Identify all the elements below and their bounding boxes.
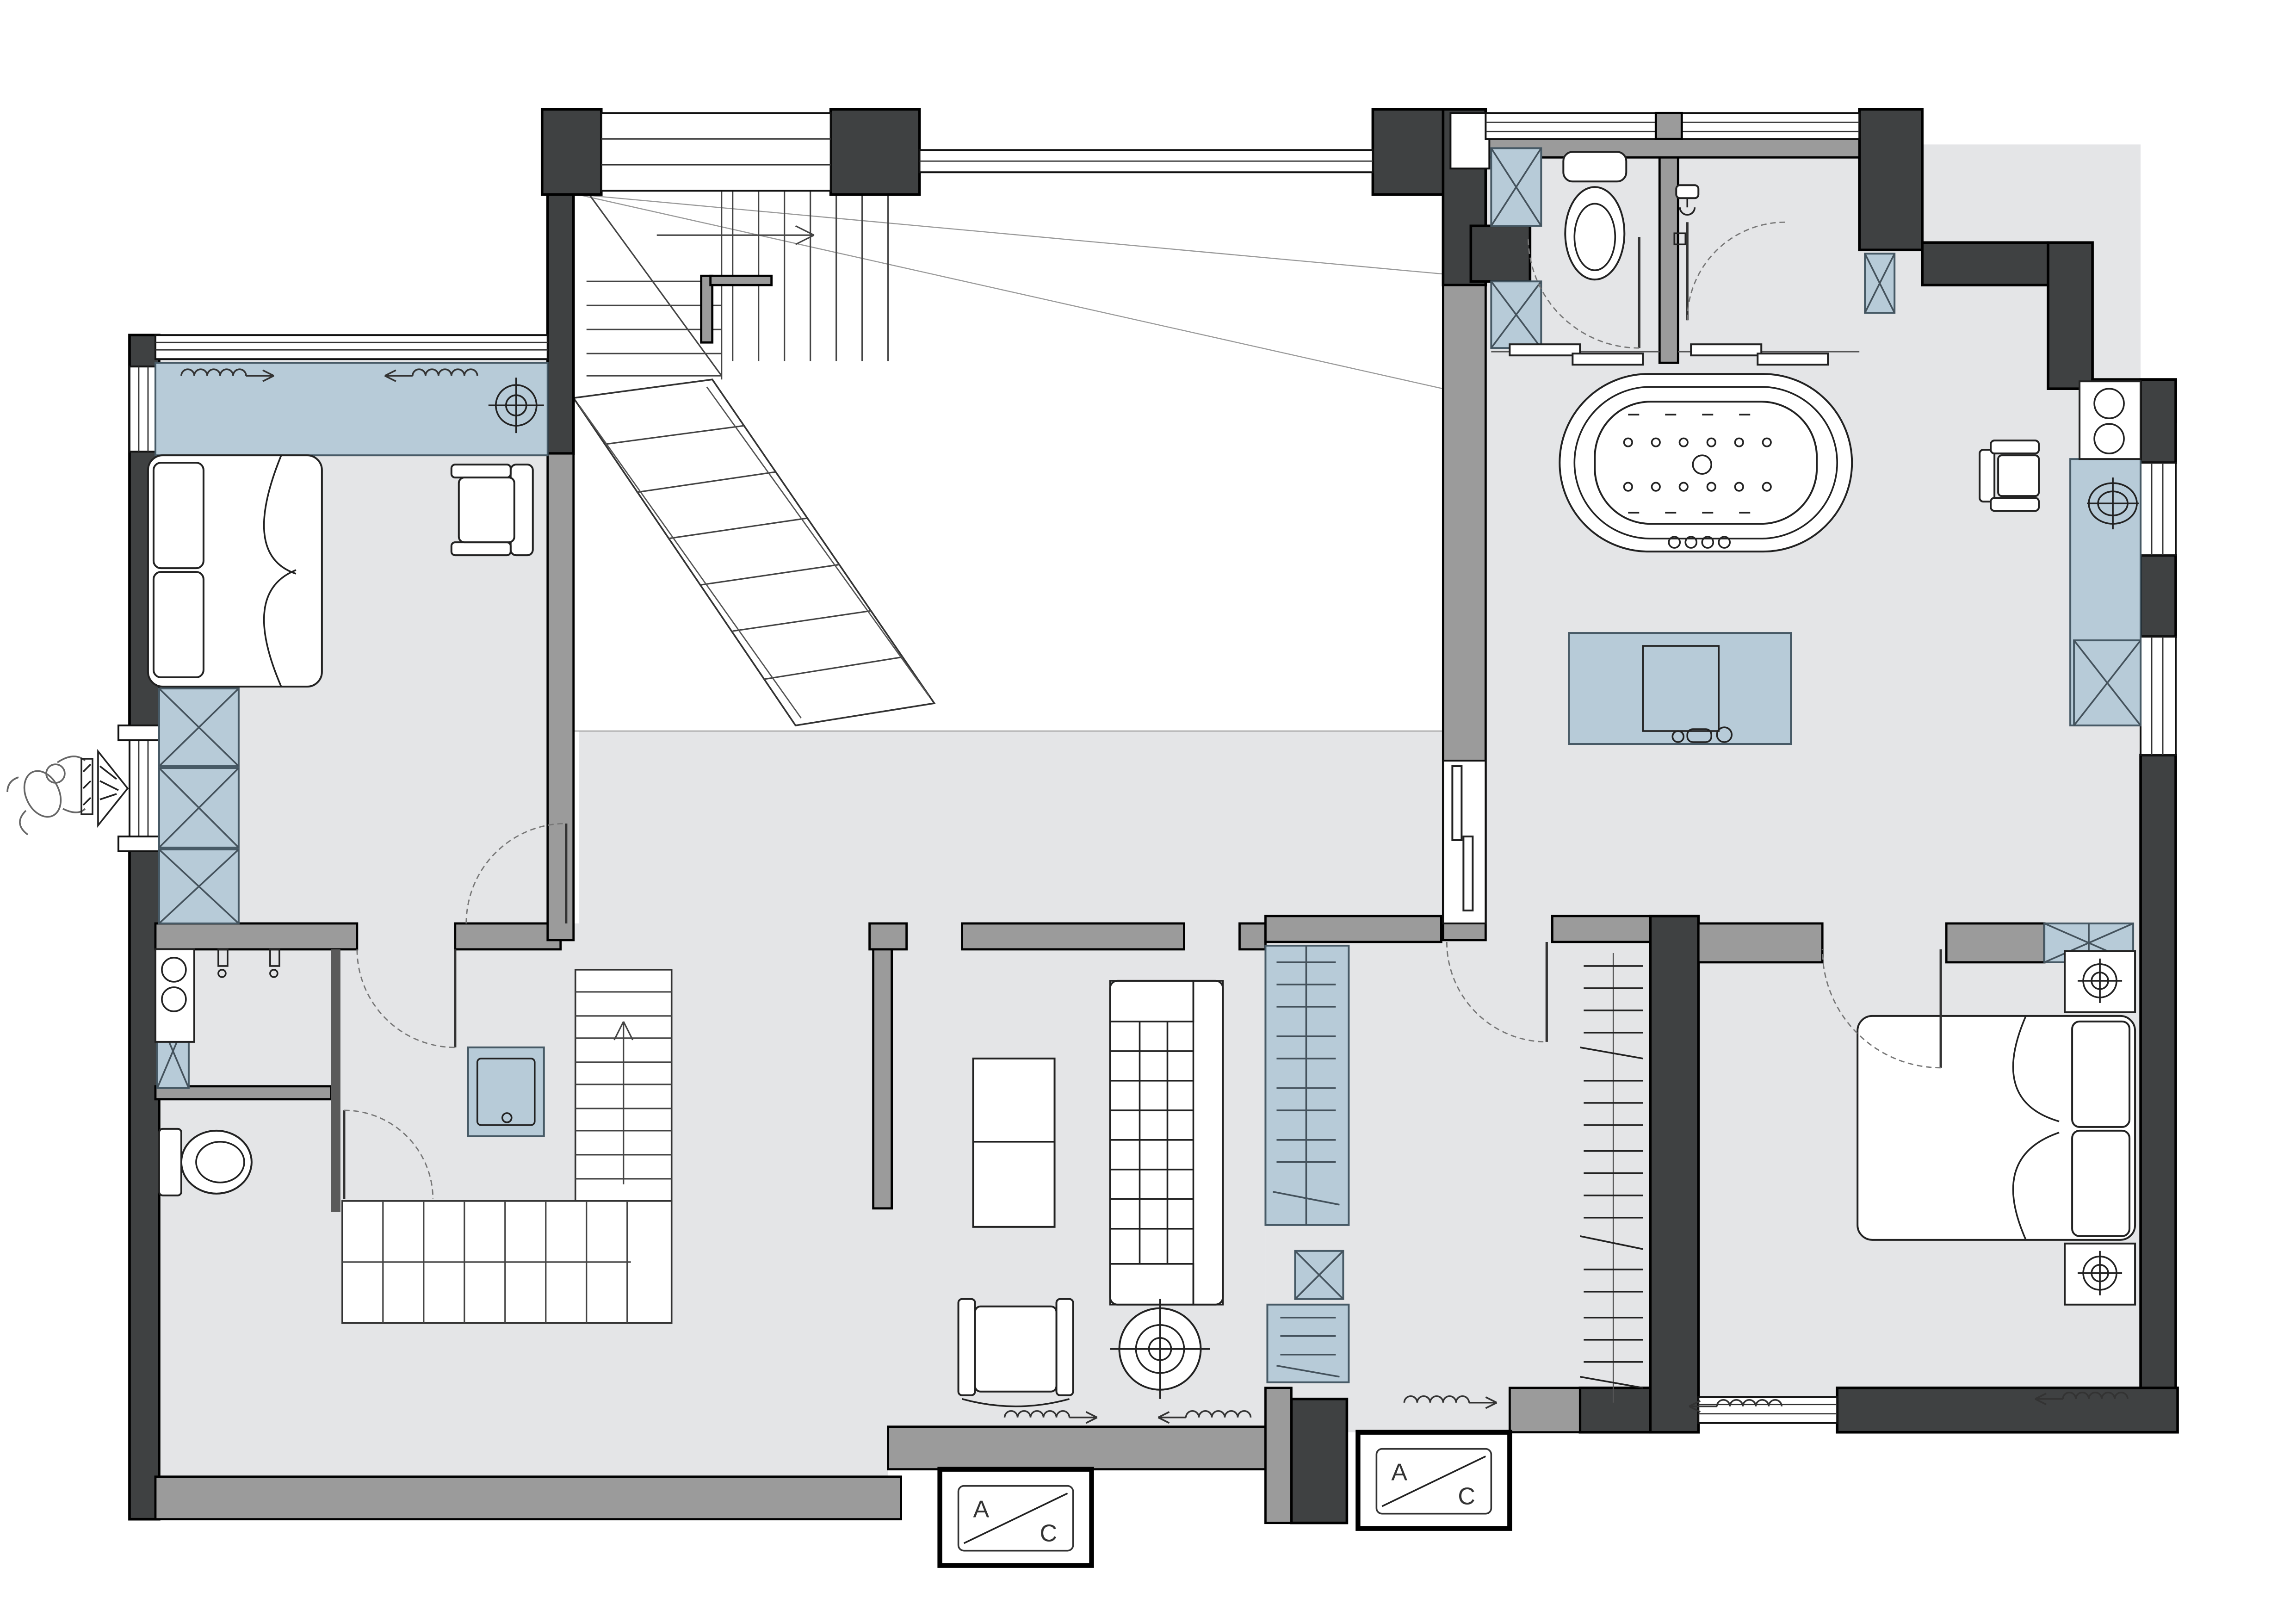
bath-east-counter xyxy=(2070,459,2141,725)
wall-bedroomTL-south-a xyxy=(155,923,357,949)
bed-topleft xyxy=(148,455,322,687)
coffee-table xyxy=(973,1059,1055,1227)
ac-platform-2: A C xyxy=(1358,1432,1510,1529)
wall-closet-north-a xyxy=(1265,916,1441,942)
pillow xyxy=(2072,1131,2129,1236)
wall-right-upper xyxy=(2048,242,2092,389)
closet-cabinet-low xyxy=(1267,1305,1349,1382)
toilet-wc-room xyxy=(1563,152,1626,279)
wall-closet-north-b xyxy=(1552,916,1650,942)
window-stair-north xyxy=(601,113,831,191)
stair-landing-wall-h xyxy=(711,276,772,285)
wall-south-pier xyxy=(1291,1399,1347,1523)
wardrobe-bedroomTL xyxy=(159,688,239,923)
washroom-vanity xyxy=(468,1047,544,1136)
wall-family-north-a xyxy=(870,923,907,949)
entry-jamb-bottom xyxy=(118,836,163,851)
pillow xyxy=(154,572,204,677)
pillow xyxy=(2072,1022,2129,1127)
window-north-small xyxy=(1450,113,1489,168)
ac-label-c: C xyxy=(1458,1483,1475,1510)
wall-ne-corner xyxy=(1859,109,1922,250)
closet-wardrobe-west xyxy=(1265,946,1349,1225)
ac-label-a: A xyxy=(1391,1459,1407,1486)
entry-jamb-top xyxy=(118,725,163,740)
wall-right-2 xyxy=(2141,555,2176,637)
window-bath-east-1 xyxy=(2141,463,2176,555)
pocket-door-bath-entry xyxy=(1443,761,1485,923)
wall-bedroom-north-b xyxy=(1946,923,2044,962)
wall-wc-stub xyxy=(1471,226,1530,281)
wall-right-3 xyxy=(2141,755,2176,1412)
nightstand-south xyxy=(2065,1244,2135,1305)
wall-family-north-c xyxy=(1239,923,1265,949)
wall-bedroomTL-east xyxy=(548,453,574,940)
toilet-washroom xyxy=(159,1129,252,1196)
window-bedroomTL-north xyxy=(155,335,548,359)
entry-opening xyxy=(130,737,159,840)
ac-label-c: C xyxy=(1040,1520,1058,1547)
shower-head-icon xyxy=(1676,185,1698,198)
wall-north-block-1 xyxy=(542,109,601,194)
wall-family-west xyxy=(873,949,892,1208)
bath-stool xyxy=(1980,440,2039,511)
bathtub xyxy=(1560,374,1852,551)
wall-north-block-3 xyxy=(1373,109,1450,194)
ac-platform-1: A C xyxy=(940,1469,1092,1566)
wall-closet-south-stub xyxy=(1265,1388,1291,1523)
nightstand-north xyxy=(2065,951,2135,1012)
floor-plan-canvas: A C A C xyxy=(0,0,2296,1623)
counter-corner-unit xyxy=(2079,381,2141,459)
wall-ne-jut xyxy=(1922,242,2048,285)
entry-person-icon xyxy=(7,756,85,835)
wall-bedroom-north-a xyxy=(1698,923,1822,962)
wall-right-1 xyxy=(2141,379,2176,463)
ac-label-a: A xyxy=(973,1496,990,1523)
wall-corridor-south xyxy=(1510,1388,1580,1432)
wall-north-block-2 xyxy=(831,109,920,194)
wall-wc-shower-divider xyxy=(1659,144,1678,363)
bath-island-vanity xyxy=(1569,633,1791,744)
window-bath-east-2 xyxy=(2141,637,2176,755)
wall-family-south xyxy=(888,1427,1266,1469)
wall-south-left xyxy=(155,1477,901,1519)
wall-bedroomTL-south-b xyxy=(455,923,561,949)
sofa xyxy=(1110,981,1223,1305)
floor-lower-left-hall xyxy=(155,923,888,1477)
wall-family-north-b xyxy=(962,923,1184,949)
tatami-window-seat xyxy=(155,363,548,455)
window-mullion xyxy=(1656,113,1682,139)
washroom-basin-counter xyxy=(155,949,194,1042)
wall-stair-west xyxy=(548,194,574,453)
armchair-bedroomTL xyxy=(452,465,533,555)
entry-arrow-icon xyxy=(81,751,128,825)
pillow xyxy=(154,463,204,568)
armchair-family xyxy=(959,1299,1073,1406)
washroom-glass-partition xyxy=(331,949,340,1212)
wall-bedroom-west xyxy=(1650,916,1698,1432)
bed-master xyxy=(1857,1016,2135,1240)
